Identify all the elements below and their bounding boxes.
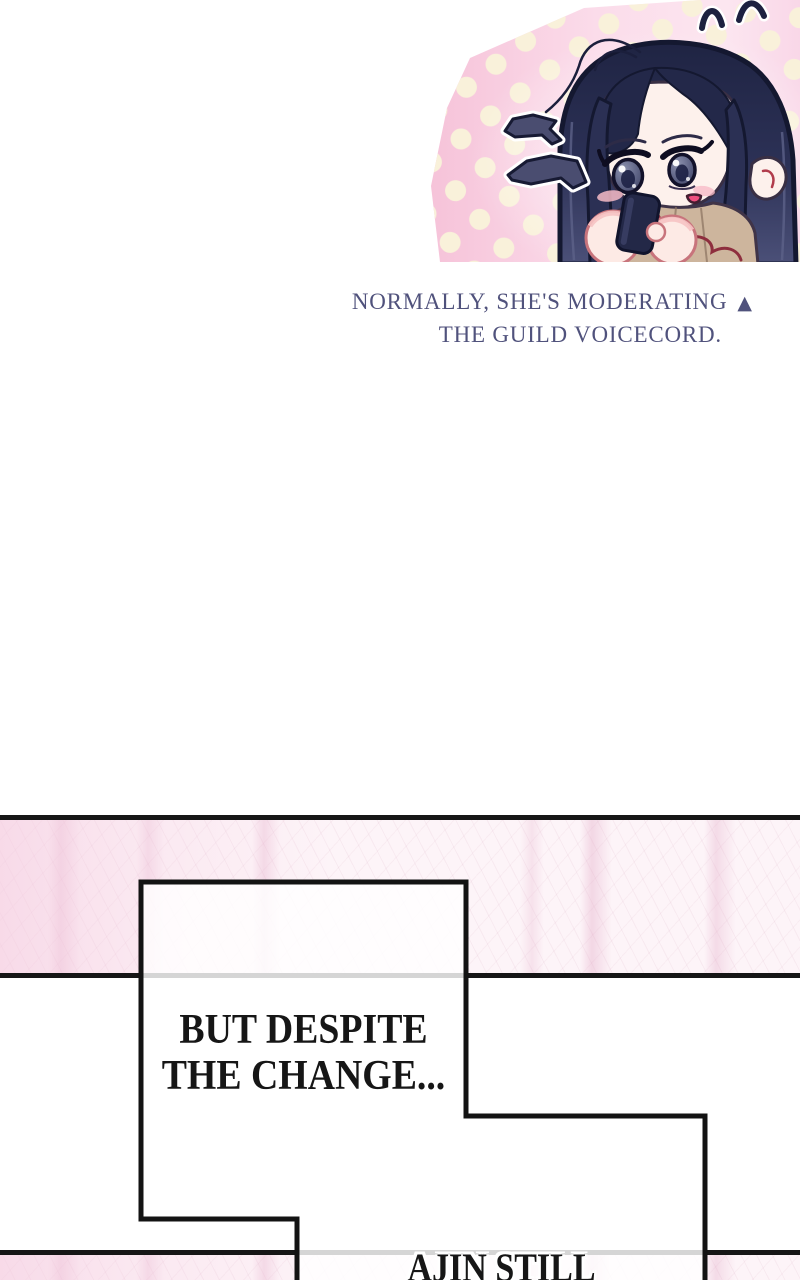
speech-box1-text: BUT DESPITE THE CHANGE...	[157, 1007, 450, 1099]
speech-box2-text: AJIN STILL	[329, 1246, 675, 1280]
caption-line-1: NORMALLY, SHE'S MODERATING▲	[352, 286, 752, 319]
mouth	[687, 195, 701, 203]
ear	[750, 157, 786, 199]
comic-page: NORMALLY, SHE'S MODERATING▲ THE GUILD VO…	[0, 0, 800, 1280]
caption-marker-triangle-icon: ▲	[737, 292, 752, 314]
caption: NORMALLY, SHE'S MODERATING▲ THE GUILD VO…	[352, 286, 752, 350]
chibi-illustration	[0, 0, 800, 264]
speech-box1-line-2: THE CHANGE...	[157, 1053, 450, 1099]
caption-line-2: THE GUILD VOICECORD.	[352, 319, 752, 350]
chibi-girl	[546, 40, 796, 264]
speech-box1-line-1: BUT DESPITE	[157, 1007, 450, 1053]
speech-box2-line-1: AJIN STILL	[329, 1246, 675, 1280]
thumb	[647, 223, 665, 241]
